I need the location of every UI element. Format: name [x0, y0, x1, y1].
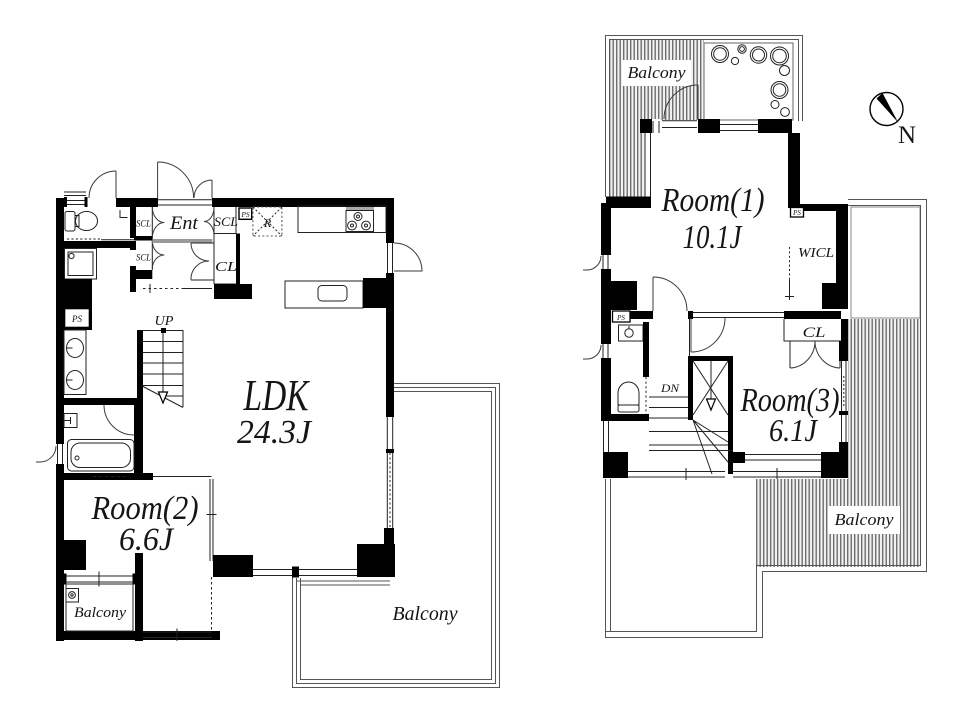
- svg-text:CL: CL: [803, 325, 826, 341]
- svg-text:Balcony: Balcony: [628, 63, 686, 82]
- svg-text:6.6J: 6.6J: [119, 522, 174, 558]
- svg-text:CL: CL: [215, 260, 237, 275]
- svg-text:R: R: [263, 216, 272, 230]
- svg-text:SCL: SCL: [136, 219, 151, 229]
- svg-text:PS: PS: [240, 210, 250, 219]
- svg-text:Ent: Ent: [169, 213, 199, 234]
- svg-text:WICL: WICL: [798, 246, 834, 261]
- svg-text:Room(1): Room(1): [661, 182, 765, 219]
- svg-text:24.3J: 24.3J: [237, 414, 313, 451]
- svg-text:SCL: SCL: [136, 253, 151, 263]
- svg-text:6.1J: 6.1J: [769, 412, 819, 448]
- svg-text:Balcony: Balcony: [74, 605, 126, 621]
- svg-text:LDK: LDK: [243, 371, 311, 420]
- svg-text:UP: UP: [155, 314, 174, 329]
- svg-text:PS: PS: [71, 314, 82, 324]
- svg-text:Balcony: Balcony: [393, 603, 458, 625]
- svg-text:PS: PS: [616, 314, 625, 322]
- svg-text:SCL: SCL: [214, 214, 238, 229]
- svg-text:PS: PS: [792, 209, 801, 217]
- svg-text:10.1J: 10.1J: [683, 219, 744, 256]
- svg-text:Balcony: Balcony: [835, 510, 894, 529]
- svg-text:N: N: [898, 122, 916, 149]
- svg-text:DN: DN: [660, 381, 680, 395]
